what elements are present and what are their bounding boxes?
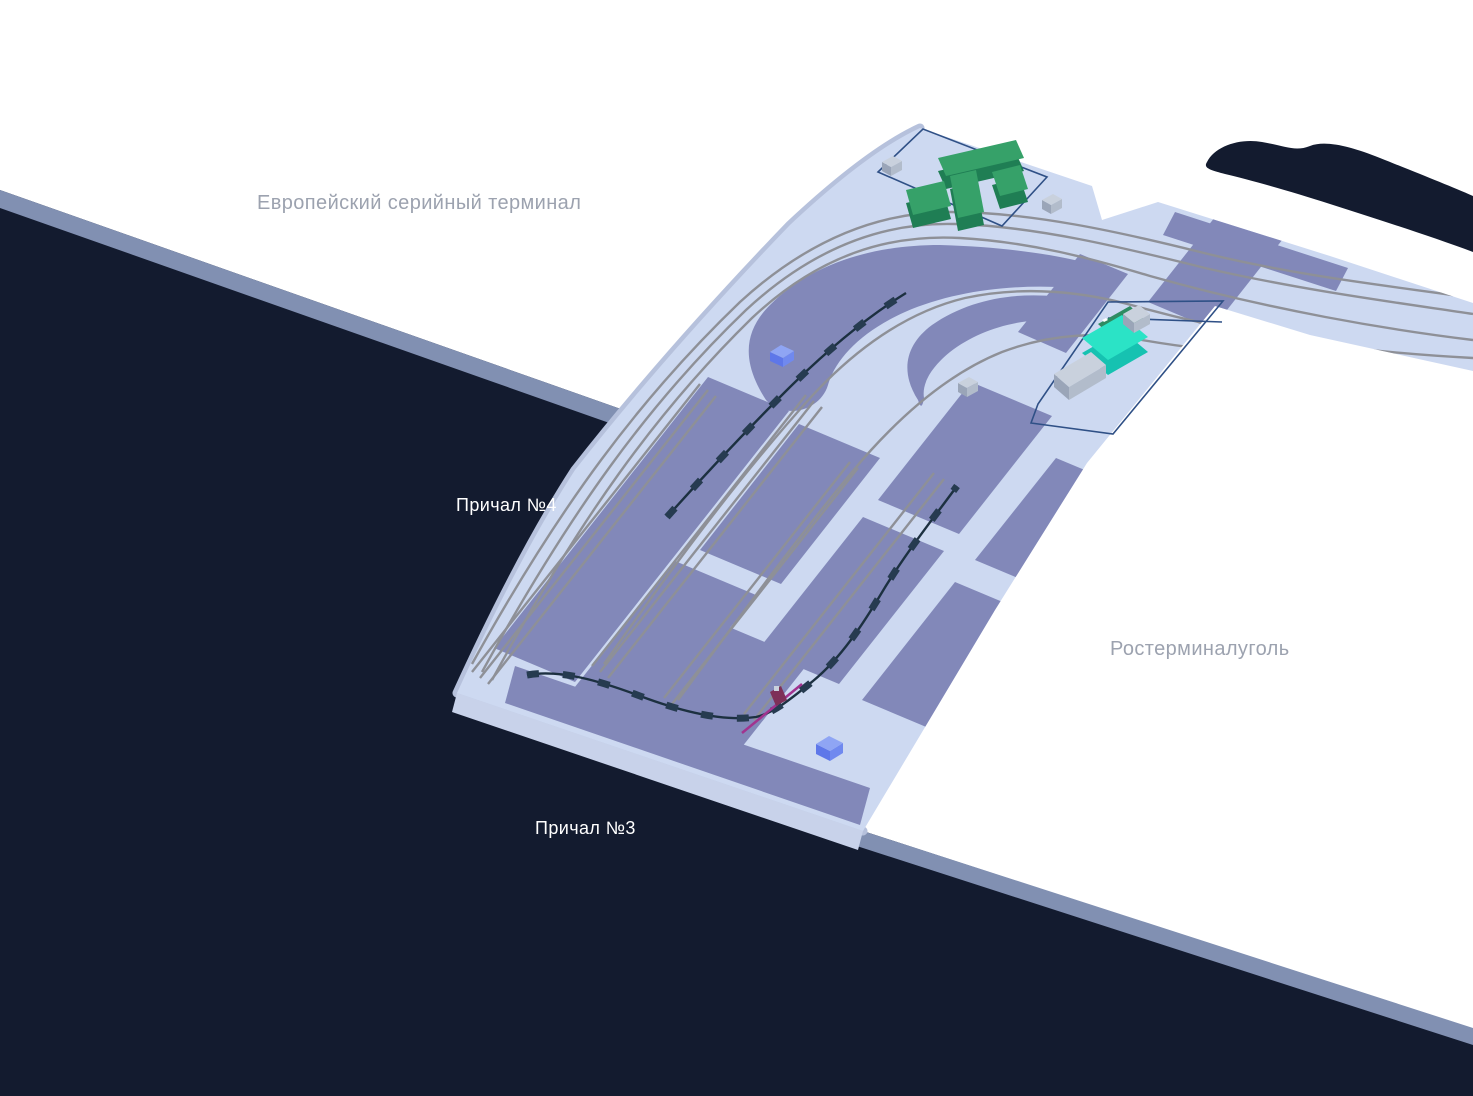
label-berth-3: Причал №3 (535, 818, 636, 839)
label-rosterminalugol: Ростерминалуголь (1110, 638, 1290, 661)
port-map: Европейский серийный терминал Причал №4 … (0, 0, 1473, 1096)
label-european-terminal: Европейский серийный терминал (257, 192, 581, 215)
crane-cab (774, 686, 779, 691)
map-canvas (0, 0, 1473, 1096)
label-berth-4: Причал №4 (456, 495, 557, 516)
